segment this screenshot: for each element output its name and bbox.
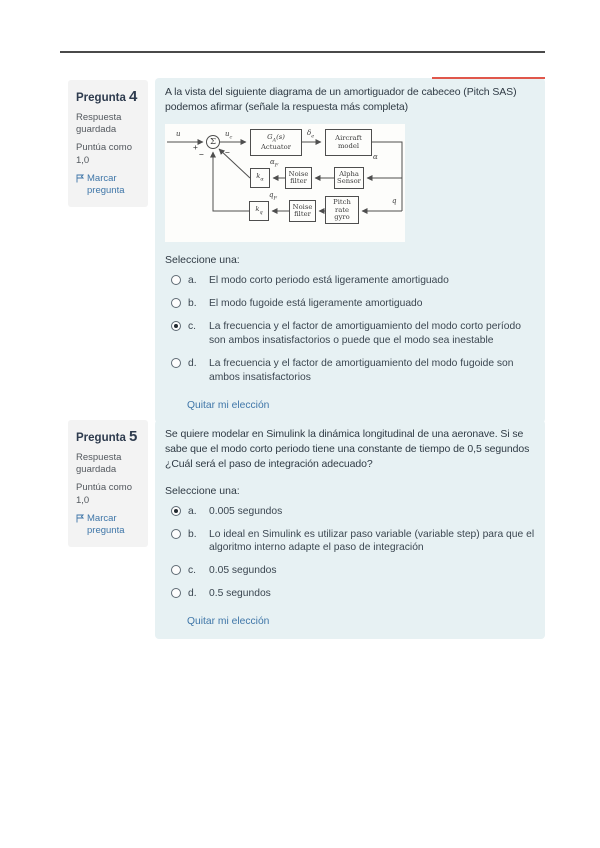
option-letter: d. (188, 357, 202, 371)
option-radio[interactable] (171, 358, 181, 368)
noise-filter-alpha-block: Noisefilter (285, 167, 312, 189)
red-accent-line (432, 77, 545, 79)
flag-question-label: Marcar pregunta (87, 513, 140, 538)
option-text: 0.5 segundos (209, 587, 271, 601)
option-letter: a. (188, 274, 202, 288)
signal-u-label: u (176, 130, 181, 138)
option-letter: c. (188, 320, 202, 334)
option-radio-selected[interactable] (171, 321, 181, 331)
question-text: A la vista del siguiente diagrama de un … (165, 85, 535, 115)
actuator-block: GA(s) Actuator (250, 129, 302, 156)
minus-sign-vertical: − (199, 150, 204, 159)
flag-question-link[interactable]: Marcar pregunta (76, 513, 140, 538)
option-text: La frecuencia y el factor de amortiguami… (209, 320, 535, 348)
question-number: Pregunta 4 (76, 87, 140, 107)
signal-alpha-f-label: αF (270, 158, 278, 168)
noise-filter-q-block: Noisefilter (289, 200, 316, 222)
question-status: Respuesta guardada (76, 452, 140, 477)
aircraft-model-block: Aircraftmodel (325, 129, 372, 156)
question-grade: Puntúa como 1,0 (76, 482, 140, 507)
quiz-page: Pregunta 4 Respuesta guardada Puntúa com… (0, 0, 600, 848)
option-radio[interactable] (171, 275, 181, 285)
gain-k-alpha-block: kα (250, 168, 270, 188)
option-letter: d. (188, 587, 202, 601)
question-text: Se quiere modelar en Simulink la dinámic… (165, 427, 535, 473)
answer-option-d[interactable]: d. 0.5 segundos (171, 587, 535, 601)
answer-option-c[interactable]: c. La frecuencia y el factor de amortigu… (171, 320, 535, 348)
option-radio[interactable] (171, 565, 181, 575)
option-letter: c. (188, 564, 202, 578)
question-status: Respuesta guardada (76, 112, 140, 137)
clear-choice-link[interactable]: Quitar mi elección (187, 400, 269, 411)
select-one-prompt: Seleccione una: (165, 485, 535, 497)
page-divider (60, 51, 545, 53)
question-5-info-panel: Pregunta 5 Respuesta guardada Puntúa com… (68, 420, 148, 547)
question-4-info-panel: Pregunta 4 Respuesta guardada Puntúa com… (68, 80, 148, 207)
actuator-name: Actuator (261, 144, 291, 152)
signal-delta-e-label: δe (307, 129, 314, 139)
answer-option-b[interactable]: b. Lo ideal en Simulink es utilizar paso… (171, 528, 535, 556)
signal-q-label: q (392, 197, 396, 205)
flag-question-link[interactable]: Marcar pregunta (76, 173, 140, 198)
sigma-symbol: Σ (210, 137, 216, 147)
answer-option-d[interactable]: d. La frecuencia y el factor de amortigu… (171, 357, 535, 385)
plus-sign: + (193, 143, 198, 152)
block-diagram-image: u + − − Σ uc GA(s) Actuator δe Aircraftm… (165, 124, 405, 242)
option-letter: b. (188, 297, 202, 311)
alpha-sensor-block: AlphaSensor (334, 167, 364, 189)
option-text: La frecuencia y el factor de amortiguami… (209, 357, 535, 385)
option-letter: b. (188, 528, 202, 542)
question-number-label: Pregunta (76, 92, 126, 104)
option-radio-selected[interactable] (171, 506, 181, 516)
question-number: Pregunta 5 (76, 427, 140, 447)
option-text: 0.005 segundos (209, 505, 282, 519)
flag-icon (76, 514, 84, 523)
option-letter: a. (188, 505, 202, 519)
option-text: Lo ideal en Simulink es utilizar paso va… (209, 528, 535, 556)
answer-option-a[interactable]: a. El modo corto periodo está ligerament… (171, 274, 535, 288)
select-one-prompt: Seleccione una: (165, 254, 535, 266)
gain-k-q-block: kq (249, 201, 269, 221)
flag-question-label: Marcar pregunta (87, 173, 140, 198)
question-number-value: 4 (129, 88, 137, 105)
pitch-rate-gyro-block: Pitchrategyro (325, 196, 359, 224)
question-grade: Puntúa como 1,0 (76, 142, 140, 167)
answer-option-b[interactable]: b. El modo fugoide está ligeramente amor… (171, 297, 535, 311)
clear-choice-link[interactable]: Quitar mi elección (187, 616, 269, 627)
question-5-content-panel: Se quiere modelar en Simulink la dinámic… (155, 420, 545, 639)
option-radio[interactable] (171, 588, 181, 598)
answer-option-a[interactable]: a. 0.005 segundos (171, 505, 535, 519)
minus-sign-diagonal: − (225, 148, 230, 157)
question-4-content-panel: A la vista del siguiente diagrama de un … (155, 78, 545, 423)
option-radio[interactable] (171, 298, 181, 308)
signal-uc-label: uc (225, 130, 232, 140)
question-number-value: 5 (129, 428, 137, 445)
option-radio[interactable] (171, 529, 181, 539)
signal-alpha-label: α (373, 153, 378, 161)
signal-q-f-label: qF (269, 191, 277, 201)
flag-icon (76, 174, 84, 183)
answer-option-c[interactable]: c. 0.05 segundos (171, 564, 535, 578)
option-text: El modo corto periodo está ligeramente a… (209, 274, 449, 288)
option-text: 0.05 segundos (209, 564, 277, 578)
option-text: El modo fugoide está ligeramente amortig… (209, 297, 423, 311)
question-number-label: Pregunta (76, 432, 126, 444)
